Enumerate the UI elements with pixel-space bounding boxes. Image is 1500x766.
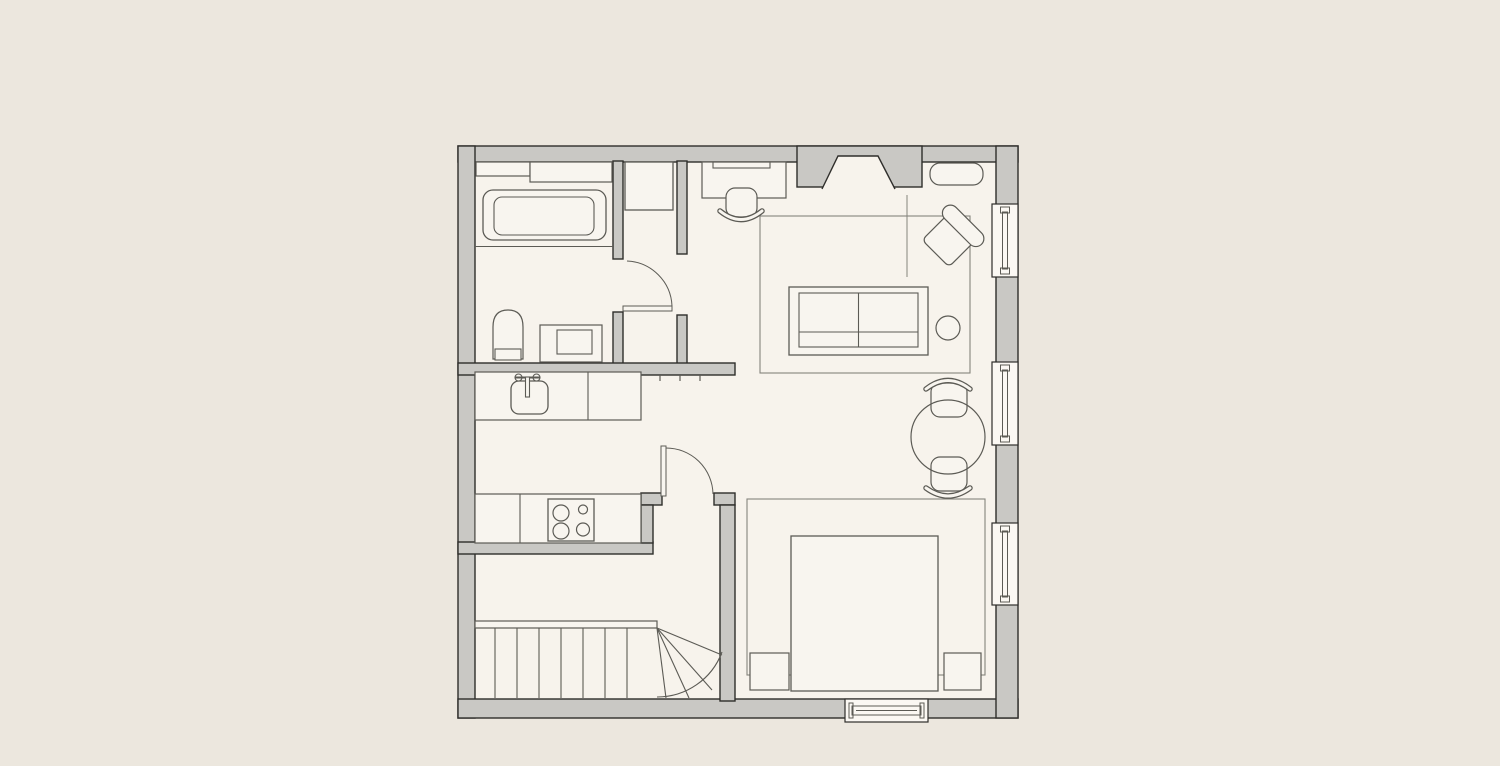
screenshot-root (0, 0, 1500, 766)
window-bottom (845, 699, 928, 722)
toilet (493, 310, 523, 360)
nightstand-east (944, 653, 981, 690)
bathtub (483, 190, 606, 240)
floor-plan-svg (0, 0, 1500, 766)
nightstand-west (750, 653, 789, 690)
bed (791, 536, 938, 691)
wall-bottom (458, 699, 1018, 718)
wall-bathroom-east-upper (613, 161, 623, 259)
wall-bathroom-east-lower (613, 312, 623, 364)
bathroom-vanity (540, 325, 602, 362)
wall-top (458, 146, 1018, 162)
window-right-3 (992, 523, 1018, 605)
wall-kitchen-south (458, 542, 653, 554)
kitchen-counter-sink (475, 372, 641, 420)
entry-bench (930, 163, 983, 185)
entry-door-niche (797, 146, 922, 189)
kitchen-stove (548, 499, 594, 541)
hall-closet (625, 162, 673, 210)
wall-hall-east-upper (677, 161, 687, 254)
wall-left (458, 146, 475, 718)
dining-chair-north (926, 381, 970, 418)
window-right-1 (992, 204, 1018, 277)
wall-hall-east-lower (677, 315, 687, 364)
dining-chair-south (926, 457, 970, 496)
window-right-2 (992, 362, 1018, 445)
sofa-side-table (936, 316, 960, 340)
sofa (789, 287, 928, 355)
